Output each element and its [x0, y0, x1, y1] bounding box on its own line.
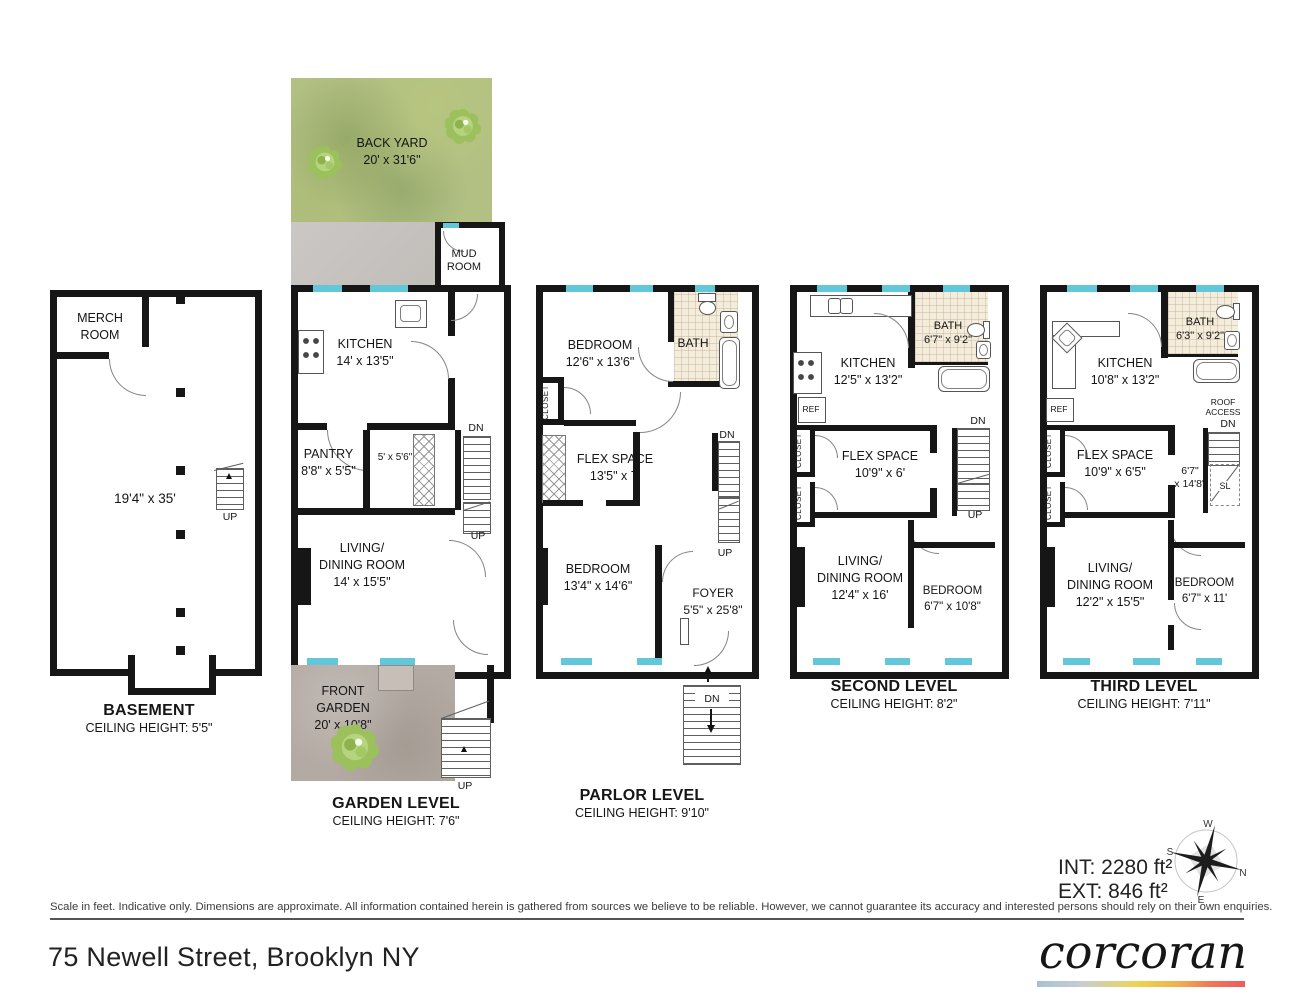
compass-n: N	[1239, 868, 1246, 879]
up-label: UP	[210, 511, 250, 523]
second-ceiling: CEILING HEIGHT: 8'2"	[790, 697, 998, 711]
window	[1067, 285, 1097, 292]
wall	[1168, 625, 1174, 650]
stair-arrow-up-icon	[461, 746, 467, 752]
column	[176, 295, 185, 304]
garden-ceiling: CEILING HEIGHT: 7'6"	[291, 814, 501, 828]
wall	[291, 423, 327, 430]
mud-room-label: MUD ROOM	[438, 248, 490, 274]
wall	[815, 425, 930, 431]
dn-label: DN	[1211, 418, 1245, 430]
disclaimer-text: Scale in feet. Indicative only. Dimensio…	[50, 901, 1272, 913]
wall	[1065, 512, 1168, 518]
closet-dims-label: 5' x 5'6"	[365, 451, 425, 464]
sl-label: SL	[1213, 481, 1237, 491]
flex-space-label: FLEX SPACE 13'5" x 7'	[550, 451, 680, 485]
divider-line	[50, 918, 1244, 920]
wall	[914, 542, 995, 548]
stairs-down	[718, 441, 740, 497]
third-level-plan: BATH 6'3" x 9'2" KITCHEN 10'8" x 13'2" R…	[1040, 285, 1248, 665]
wall	[655, 545, 662, 658]
closet-label: CLOSET	[541, 384, 550, 420]
wall	[790, 472, 815, 477]
window	[443, 223, 459, 228]
window	[380, 658, 415, 665]
stairs-down	[957, 428, 990, 485]
stairs-down	[1208, 432, 1240, 466]
kitchen-sink-icon	[395, 300, 427, 328]
closet-hatch	[413, 434, 435, 506]
living-dining-label: LIVING/ DINING ROOM 14' x 15'5"	[292, 540, 432, 591]
bath-sink-icon	[976, 341, 991, 359]
closet-label: CLOSET	[1044, 484, 1053, 520]
wall	[487, 665, 494, 723]
brand-gradient-bar	[1037, 981, 1245, 987]
toilet-icon	[1216, 305, 1235, 319]
bath-sink-icon	[1224, 331, 1240, 350]
bathtub-icon	[938, 366, 990, 392]
window	[313, 285, 342, 292]
bedroom2-label: BEDROOM 13'4" x 14'6"	[536, 561, 660, 595]
garden-title: GARDEN LEVEL	[291, 795, 501, 813]
wall	[543, 500, 583, 506]
window	[370, 285, 408, 292]
window	[943, 285, 970, 292]
chimney	[536, 548, 548, 605]
tree-icon	[308, 145, 342, 179]
hall-dims-label: 6'7" x 14'8"	[1170, 465, 1210, 491]
closet-label: CLOSET	[794, 432, 803, 468]
window	[307, 658, 338, 665]
bath-label: BATH	[663, 335, 723, 352]
dn-label: DN	[459, 422, 493, 434]
toilet-icon	[967, 323, 985, 337]
tree-icon	[445, 108, 481, 144]
window	[1133, 658, 1160, 665]
pantry-label: PANTRY 8'8" x 5'5"	[291, 446, 366, 480]
window	[561, 658, 592, 665]
basement-ceiling: CEILING HEIGHT: 5'5"	[49, 721, 249, 735]
chimney	[790, 547, 805, 607]
window	[566, 285, 593, 292]
floor-plan-page: MERCH ROOM 19'4" x 35' UP BASEMENT CEILI…	[0, 0, 1294, 1000]
window	[817, 285, 847, 292]
stairs-up	[957, 483, 990, 511]
bathtub-icon	[1193, 359, 1240, 383]
dn-label: DN	[961, 415, 995, 427]
window	[637, 658, 662, 665]
property-address: 75 Newell Street, Brooklyn NY	[48, 942, 420, 973]
window	[1063, 658, 1090, 665]
dn-label: DN	[695, 693, 729, 705]
column	[176, 530, 185, 539]
wall	[1161, 292, 1168, 358]
column	[176, 646, 185, 655]
corcoran-logo: corcoran	[1035, 926, 1247, 978]
chimney	[1040, 547, 1055, 607]
roof-access-label: ROOF ACCESS	[1190, 397, 1256, 417]
basement-title: BASEMENT	[49, 702, 249, 720]
window	[1130, 285, 1158, 292]
ref-label: REF	[1046, 404, 1072, 414]
kitchen-sink-icon	[840, 298, 853, 314]
flex-space-label: FLEX SPACE 10'9" x 6'	[815, 448, 945, 482]
compass-w: W	[1203, 819, 1213, 830]
wall	[790, 522, 815, 527]
compass-s: S	[1167, 847, 1174, 858]
wall	[1065, 425, 1168, 431]
garden-level-plan: BACK YARD 20' x 31'6" MUD ROOM KITCHEN 1…	[291, 78, 503, 794]
window	[1196, 658, 1222, 665]
wall	[606, 500, 640, 506]
column	[176, 608, 185, 617]
bath-label: BATH 6'3" x 9'2"	[1168, 315, 1232, 343]
bedroom-label: BEDROOM 6'7" x 10'8"	[910, 583, 995, 615]
kitchen-label: KITCHEN 10'8" x 13'2"	[1055, 355, 1195, 389]
wall	[291, 508, 455, 515]
second-level-plan: BATH 6'7" x 9'2" KITCHEN 12'5" x 13'2" R…	[790, 285, 998, 665]
radiator	[680, 618, 689, 645]
up-label: UP	[958, 509, 992, 521]
entry-arrow-up-icon	[704, 666, 712, 674]
wall	[367, 423, 455, 430]
kitchen-counter	[810, 295, 912, 317]
stairs-down	[463, 436, 491, 500]
third-title: THIRD LEVEL	[1040, 678, 1248, 696]
up-label: UP	[708, 547, 742, 559]
basement-plan: MERCH ROOM 19'4" x 35' UP	[50, 290, 250, 702]
window	[813, 658, 840, 665]
stair-arrow-up-icon	[226, 473, 232, 479]
second-title: SECOND LEVEL	[790, 678, 998, 696]
kitchen-label: KITCHEN 12'5" x 13'2"	[798, 355, 938, 389]
wall	[57, 352, 109, 359]
merch-room-label: MERCH ROOM	[58, 310, 142, 344]
basement-dims-label: 19'4" x 35'	[85, 490, 205, 507]
wall	[930, 488, 937, 518]
parlor-ceiling: CEILING HEIGHT: 9'10"	[536, 806, 748, 820]
stoop-arrow-down-icon	[707, 725, 715, 733]
foyer-label: FOYER 5'5" x 25'8"	[680, 585, 746, 619]
wall	[142, 297, 149, 347]
arrow-stem	[707, 674, 709, 682]
bedroom1-label: BEDROOM 12'6" x 13'6"	[536, 337, 664, 371]
window	[695, 285, 715, 292]
wall	[564, 420, 636, 426]
up-label: UP	[443, 780, 487, 792]
bedroom-label: BEDROOM 6'7" x 11'	[1164, 575, 1245, 607]
window	[945, 658, 972, 665]
window	[630, 285, 653, 292]
parlor-level-plan: BATH BEDROOM 12'6" x 13'6" CLOSET FLEX S…	[536, 285, 748, 785]
dn-label: DN	[710, 429, 744, 441]
living-dining-label: LIVING/ DINING ROOM 12'2" x 15'5"	[1040, 560, 1180, 611]
flex-space-label: FLEX SPACE 10'9" x 6'5"	[1050, 447, 1180, 481]
column	[176, 466, 185, 475]
wall	[668, 381, 720, 387]
wall	[1174, 542, 1245, 548]
column	[176, 388, 185, 397]
up-label: UP	[461, 530, 495, 542]
bath-sink-icon	[720, 311, 738, 333]
window	[1196, 285, 1224, 292]
closet-label: CLOSET	[794, 484, 803, 520]
third-ceiling: CEILING HEIGHT: 7'11"	[1040, 697, 1248, 711]
wall	[1040, 522, 1065, 527]
window	[885, 658, 910, 665]
cellar-bulkhead	[128, 655, 216, 695]
compass-rose-icon: W S N E	[1160, 815, 1252, 907]
arrow-stem	[710, 709, 712, 725]
interior-area: INT: 2280 ft²	[1058, 856, 1172, 880]
wall	[455, 430, 461, 510]
tree-icon	[331, 723, 379, 771]
parlor-title: PARLOR LEVEL	[536, 787, 748, 805]
ref-label: REF	[798, 404, 824, 414]
patio	[291, 222, 435, 292]
toilet-icon	[699, 301, 716, 315]
window	[882, 285, 910, 292]
wall	[815, 512, 930, 518]
